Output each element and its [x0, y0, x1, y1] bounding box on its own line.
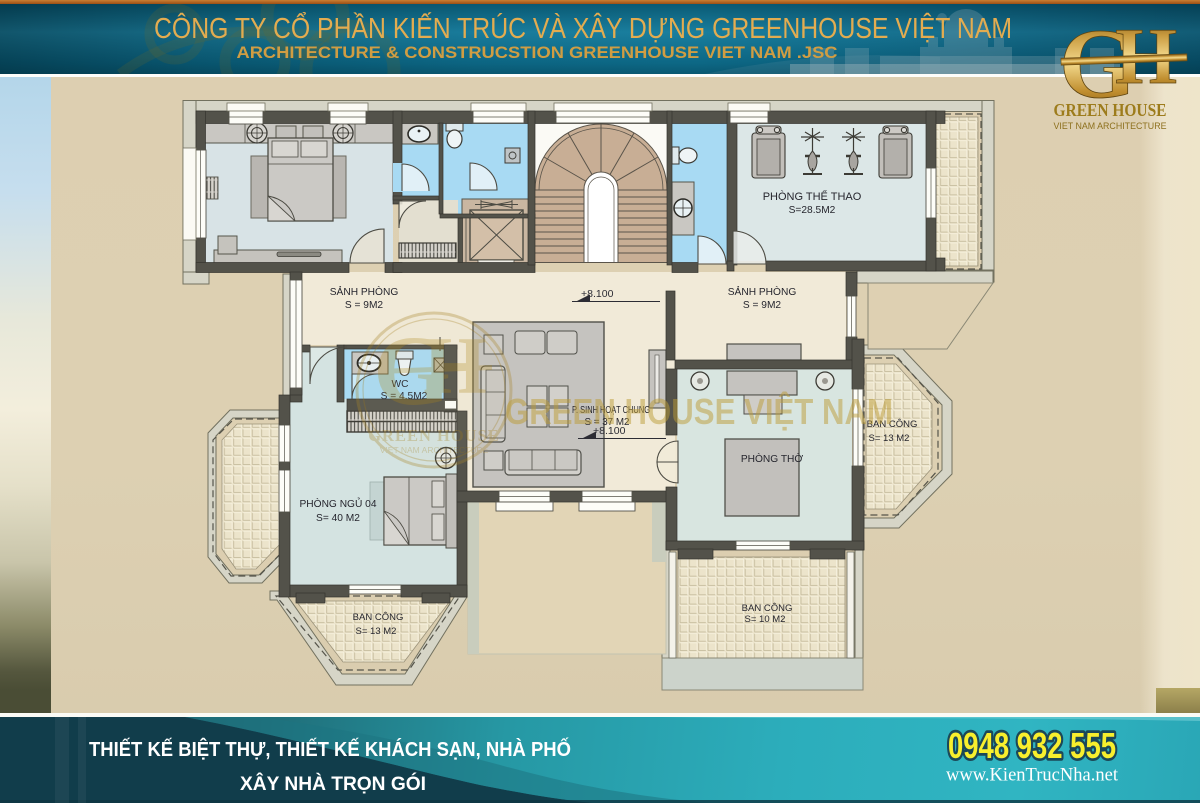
svg-text:S = 9M2: S = 9M2 — [743, 300, 782, 311]
svg-text:GREEN HOUSE: GREEN HOUSE — [1054, 100, 1167, 120]
svg-text:0948 932 555: 0948 932 555 — [948, 725, 1116, 766]
svg-text:S= 10 M2: S= 10 M2 — [745, 614, 786, 625]
svg-text:THIẾT KẾ BIỆT THỰ, THIẾT KẾ KH: THIẾT KẾ BIỆT THỰ, THIẾT KẾ KHÁCH SẠN, N… — [89, 737, 571, 761]
svg-text:GREEN HOUSE: GREEN HOUSE — [368, 426, 500, 445]
svg-text:S= 13 M2: S= 13 M2 — [869, 433, 910, 444]
svg-text:PHÒNG THỜ: PHÒNG THỜ — [741, 452, 804, 465]
svg-text:S = 9M2: S = 9M2 — [345, 300, 384, 311]
svg-text:BAN CÔNG: BAN CÔNG — [353, 612, 404, 623]
svg-text:GREEN HOUSE VIỆT NAM: GREEN HOUSE VIỆT NAM — [505, 390, 893, 432]
svg-text:XÂY NHÀ TRỌN GÓI: XÂY NHÀ TRỌN GÓI — [240, 771, 426, 795]
svg-text:PHÒNG NGỦ 04: PHÒNG NGỦ 04 — [300, 497, 377, 510]
svg-text:S= 13 M2: S= 13 M2 — [356, 626, 397, 637]
svg-text:BAN CÔNG: BAN CÔNG — [742, 603, 793, 614]
svg-text:S=28.5M2: S=28.5M2 — [789, 205, 836, 216]
svg-text:S= 40 M2: S= 40 M2 — [316, 513, 360, 524]
svg-text:VIET NAM ARCHITECTURE: VIET NAM ARCHITECTURE — [380, 445, 489, 455]
svg-text:PHÒNG THỂ THAO: PHÒNG THỂ THAO — [763, 190, 862, 203]
svg-text:H: H — [423, 320, 487, 411]
svg-text:VIET NAM ARCHITECTURE: VIET NAM ARCHITECTURE — [1054, 121, 1167, 132]
svg-text:SẢNH PHÒNG: SẢNH PHÒNG — [330, 285, 399, 298]
svg-text:www.KienTrucNha.net: www.KienTrucNha.net — [946, 764, 1119, 785]
svg-text:SẢNH PHÒNG: SẢNH PHÒNG — [728, 285, 797, 298]
